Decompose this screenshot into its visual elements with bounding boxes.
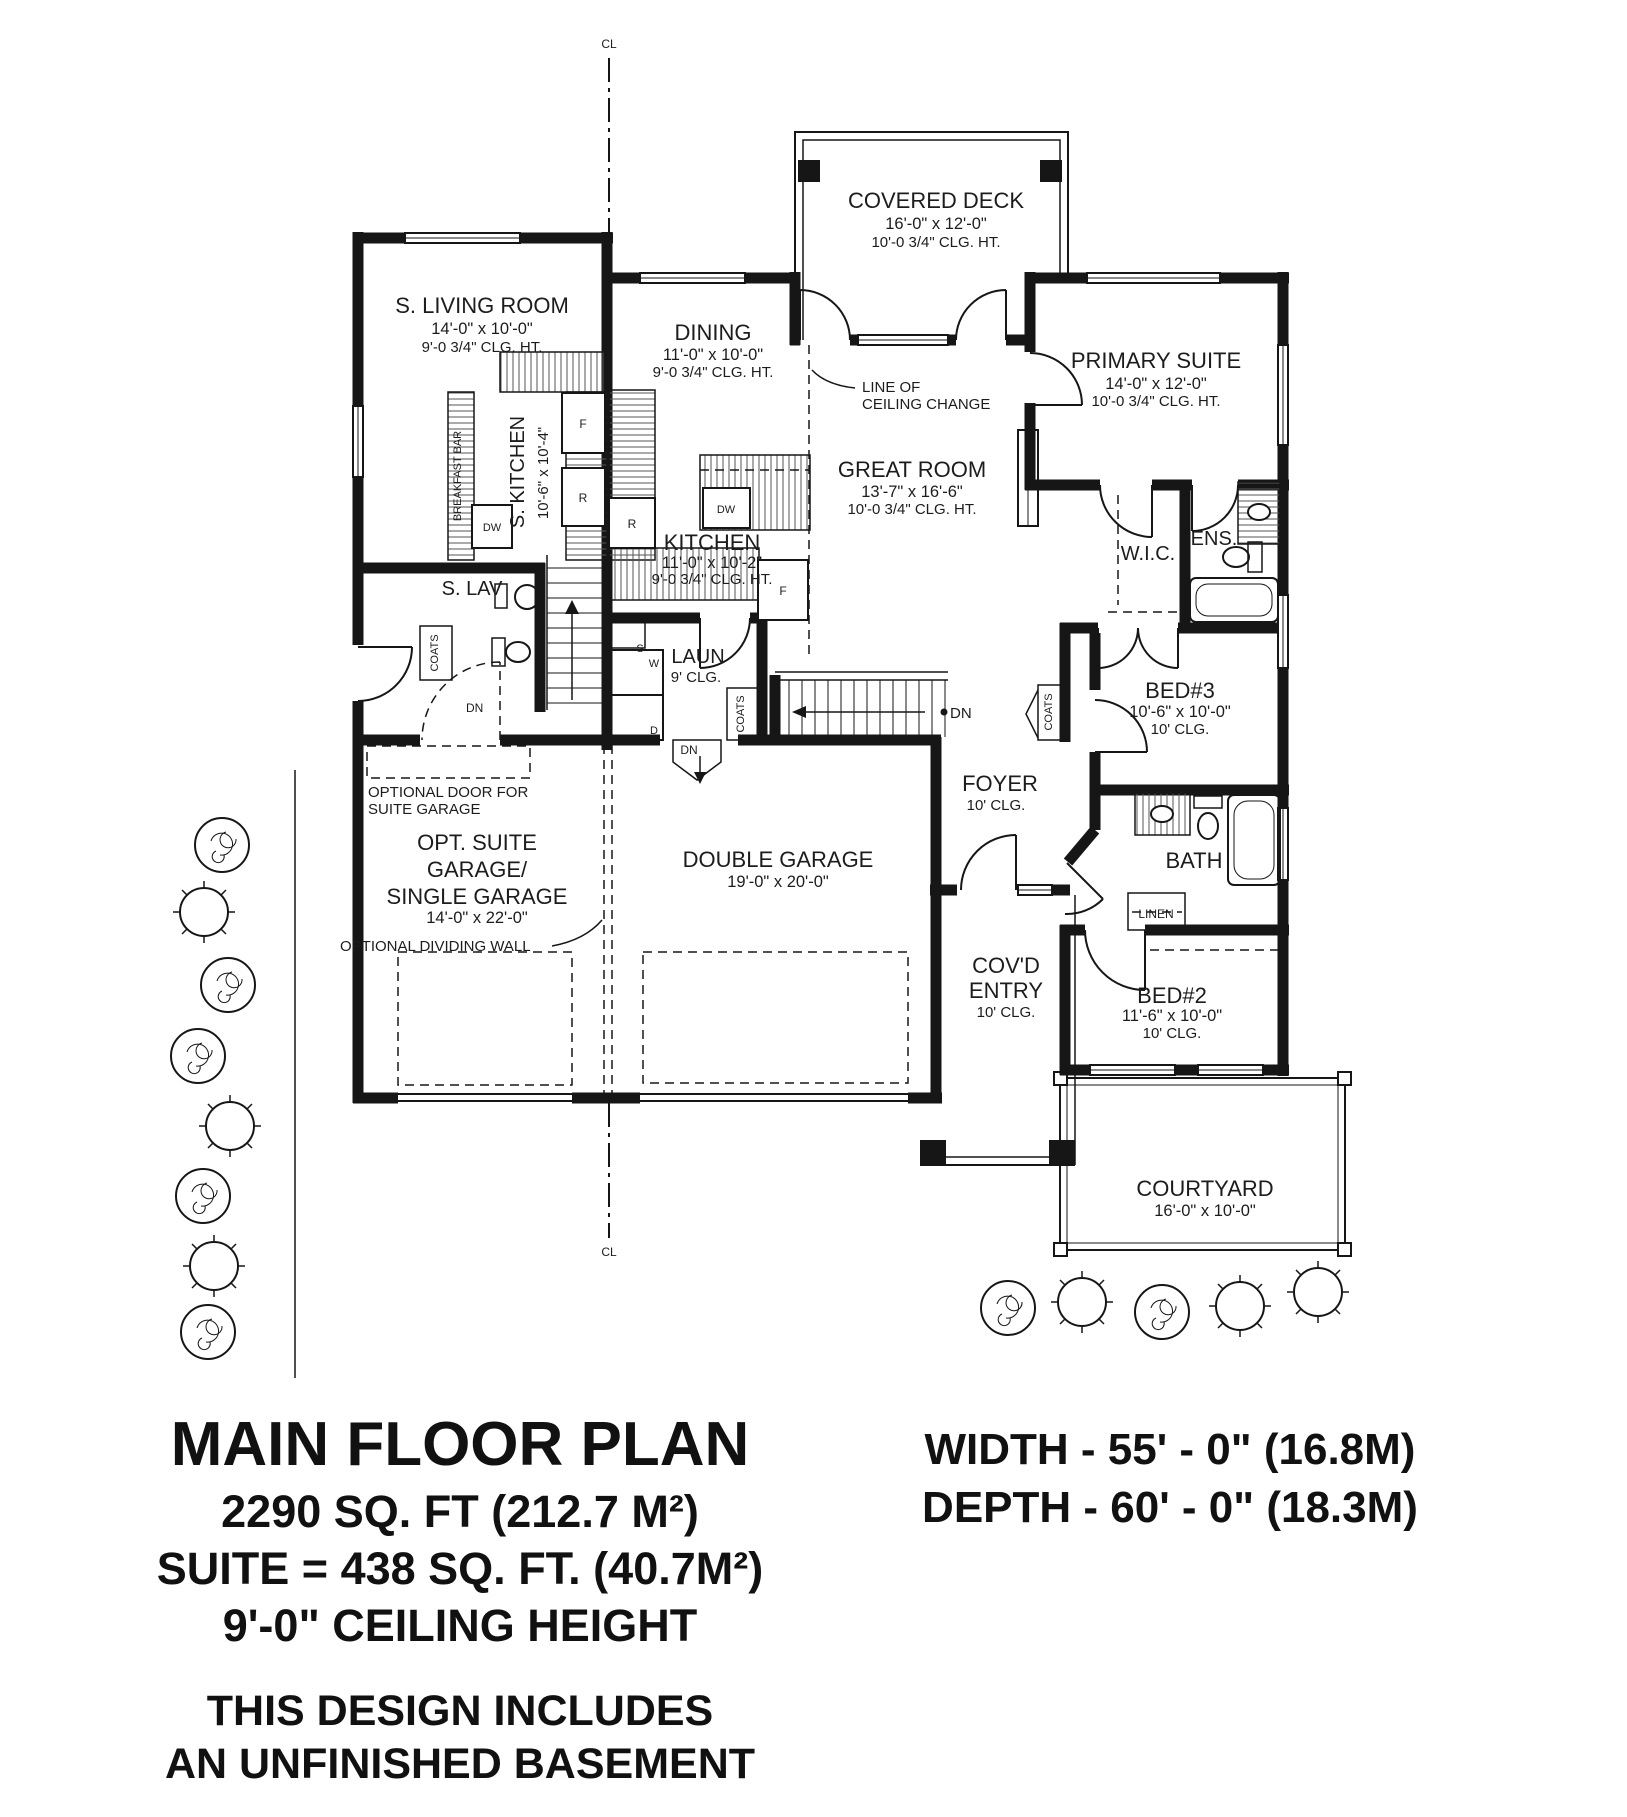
room-label-covd-entry-2: ENTRY xyxy=(969,978,1043,1003)
room-dim-courtyard: 16'-0" x 10'-0" xyxy=(1154,1202,1256,1220)
room-label-wic: W.I.C. xyxy=(1121,543,1175,565)
room-clg-covd-entry: 10' CLG. xyxy=(977,1004,1036,1021)
room-clg-s-living: 9'-0 3/4" CLG. HT. xyxy=(422,339,543,356)
tree-icon xyxy=(199,1095,261,1157)
window xyxy=(1198,1065,1263,1075)
room-label-bed2: BED#2 xyxy=(1137,983,1207,1008)
tree-icon xyxy=(195,818,249,872)
window xyxy=(1278,345,1288,445)
room-dim-dining: 11'-0" x 10'-0" xyxy=(663,346,763,364)
optional-door-label-1: OPTIONAL DOOR FOR xyxy=(368,784,528,801)
ceiling-change-label-2: CEILING CHANGE xyxy=(862,396,990,413)
door-arc xyxy=(1192,485,1238,531)
room-label-linen: LINEN xyxy=(1138,907,1173,921)
room-clg-dining: 9'-0 3/4" CLG. HT. xyxy=(653,364,774,381)
door-arc xyxy=(358,647,412,701)
dryer-label: D xyxy=(650,725,658,737)
door-arc-dashed xyxy=(422,662,500,740)
door-arc-double xyxy=(1098,628,1178,668)
room-dim-s-living: 14'-0" x 10'-0" xyxy=(431,320,533,338)
tree-icon xyxy=(183,1235,245,1297)
range-label: R xyxy=(579,491,588,505)
room-dim-kitchen: 11'-0" x 10'-2" xyxy=(662,554,762,572)
room-dim-s-kitchen: 10'-6" x 10'-4" xyxy=(535,427,552,519)
stairs-dn-label: DN xyxy=(466,701,483,715)
room-clg-kitchen: 9'-0 3/4" CLG. HT. xyxy=(652,571,773,588)
tree-icon xyxy=(1287,1261,1349,1323)
fridge-label: F xyxy=(579,417,586,431)
room-dim-covered-deck: 16'-0" x 12'-0" xyxy=(885,215,987,233)
centerline-symbol-bottom: CL xyxy=(601,1245,617,1259)
room-clg-great: 10'-0 3/4" CLG. HT. xyxy=(847,501,976,518)
optional-door-label-2: SUITE GARAGE xyxy=(368,801,481,818)
plan-ceiling-height: 9'-0" CEILING HEIGHT xyxy=(60,1603,860,1648)
tree-icon xyxy=(181,1305,235,1359)
tree-icon xyxy=(1135,1285,1189,1339)
plan-note-2: AN UNFINISHED BASEMENT xyxy=(60,1743,860,1786)
room-clg-foyer: 10' CLG. xyxy=(967,797,1026,814)
room-label-covd-entry-1: COV'D xyxy=(972,953,1040,978)
trees-left xyxy=(171,818,261,1359)
room-dim-bed2: 11'-6" x 10'-0" xyxy=(1122,1007,1222,1025)
ceiling-change-line xyxy=(809,345,855,655)
door-arc xyxy=(1065,863,1103,914)
trees-bottom xyxy=(981,1261,1349,1339)
sink-label: S xyxy=(636,643,643,655)
room-label-s-lav: S. LAV xyxy=(442,578,503,600)
step-dn-label: DN xyxy=(680,743,697,757)
ceiling-change-label-1: LINE OF xyxy=(862,379,920,396)
room-label-s-living: S. LIVING ROOM xyxy=(395,293,569,318)
room-label-s-kitchen: S. KITCHEN xyxy=(507,416,529,528)
room-label-opt-garage-2: GARAGE/ xyxy=(427,857,528,882)
room-clg-bed2: 10' CLG. xyxy=(1143,1025,1202,1042)
window xyxy=(405,233,520,243)
range-label: R xyxy=(628,517,637,531)
plan-suite-area: SUITE = 438 SQ. FT. (40.7M²) xyxy=(60,1546,860,1591)
plan-depth: DEPTH - 60' - 0" (18.3M) xyxy=(860,1486,1480,1530)
porch-step: DN xyxy=(673,740,721,784)
optional-dividing-wall xyxy=(604,745,612,1098)
tree-icon xyxy=(173,881,235,943)
door-arc xyxy=(1085,930,1145,990)
plan-width: WIDTH - 55' - 0" (16.8M) xyxy=(860,1428,1480,1472)
laundry-appliances: S W D xyxy=(611,620,663,740)
floor-plan-canvas: CL CL xyxy=(0,0,1627,1817)
covered-entry-porch xyxy=(920,895,1075,1166)
room-dim-bed3: 10'-6" x 10'-0" xyxy=(1129,703,1231,721)
room-label-covered-deck: COVERED DECK xyxy=(848,188,1024,213)
window xyxy=(1018,885,1052,895)
tree-icon xyxy=(981,1281,1035,1335)
tree-icon xyxy=(176,1169,230,1223)
window xyxy=(1278,595,1288,668)
dishwasher-label: DW xyxy=(483,522,502,534)
window xyxy=(353,406,363,477)
room-clg-laun: 9' CLG. xyxy=(671,669,721,686)
plan-note-1: THIS DESIGN INCLUDES xyxy=(60,1690,860,1733)
plan-area: 2290 SQ. FT (212.7 M²) xyxy=(60,1489,860,1534)
courtyard-structure xyxy=(1054,1072,1351,1256)
coats-label: COATS xyxy=(1043,693,1055,730)
window xyxy=(640,273,745,283)
room-label-primary: PRIMARY SUITE xyxy=(1071,348,1241,373)
room-dim-great: 13'-7" x 16'-6" xyxy=(861,483,963,501)
window xyxy=(1087,273,1220,283)
room-label-great: GREAT ROOM xyxy=(838,457,986,482)
room-dim-dbl-garage: 19'-0" x 20'-0" xyxy=(727,873,829,891)
door-arc xyxy=(800,290,850,340)
room-label-ens: ENS. xyxy=(1191,528,1238,550)
dishwasher-label: DW xyxy=(717,504,736,516)
fridge-label: F xyxy=(779,584,786,598)
room-label-dining: DINING xyxy=(675,320,752,345)
tree-icon xyxy=(1051,1271,1113,1333)
coats-label: COATS xyxy=(735,695,747,732)
tree-icon xyxy=(171,1029,225,1083)
room-dim-primary: 14'-0" x 12'-0" xyxy=(1105,375,1207,393)
breakfast-bar-label: BREAKFAST BAR xyxy=(452,431,464,521)
room-dim-opt-garage: 14'-0" x 22'-0" xyxy=(426,909,528,927)
room-label-kitchen: KITCHEN xyxy=(664,530,761,555)
plan-title: MAIN FLOOR PLAN xyxy=(60,1412,860,1477)
room-clg-primary: 10'-0 3/4" CLG. HT. xyxy=(1091,393,1220,410)
room-label-courtyard: COURTYARD xyxy=(1136,1176,1273,1201)
stairs-dn-label: DN xyxy=(950,705,972,722)
garage-doors xyxy=(398,952,908,1101)
door-arc xyxy=(956,290,1006,340)
dividing-wall-label: OPTIONAL DIVIDING WALL xyxy=(340,938,531,955)
washer-label: W xyxy=(649,658,660,670)
window xyxy=(1090,1065,1175,1075)
centerline-symbol-top: CL xyxy=(601,37,617,51)
tree-icon xyxy=(1209,1275,1271,1337)
door-arc xyxy=(1100,485,1152,537)
room-label-bath: BATH xyxy=(1165,848,1222,873)
room-label-foyer: FOYER xyxy=(962,771,1038,796)
room-label-opt-garage-1: OPT. SUITE xyxy=(417,830,537,855)
room-label-bed3: BED#3 xyxy=(1145,678,1215,703)
room-label-dbl-garage: DOUBLE GARAGE xyxy=(683,847,874,872)
room-clg-bed3: 10' CLG. xyxy=(1151,721,1210,738)
title-block: MAIN FLOOR PLAN 2290 SQ. FT (212.7 M²) S… xyxy=(60,1412,860,1786)
room-label-opt-garage-3: SINGLE GARAGE xyxy=(387,884,568,909)
dimensions-block: WIDTH - 55' - 0" (16.8M) DEPTH - 60' - 0… xyxy=(860,1414,1480,1530)
coats-label: COATS xyxy=(429,634,441,671)
room-label-laun: LAUN xyxy=(671,646,724,668)
tree-icon xyxy=(201,958,255,1012)
door-arc-front xyxy=(961,835,1016,890)
window xyxy=(858,335,948,345)
stairs-main: DN xyxy=(775,672,972,737)
room-clg-covered-deck: 10'-0 3/4" CLG. HT. xyxy=(871,234,1000,251)
